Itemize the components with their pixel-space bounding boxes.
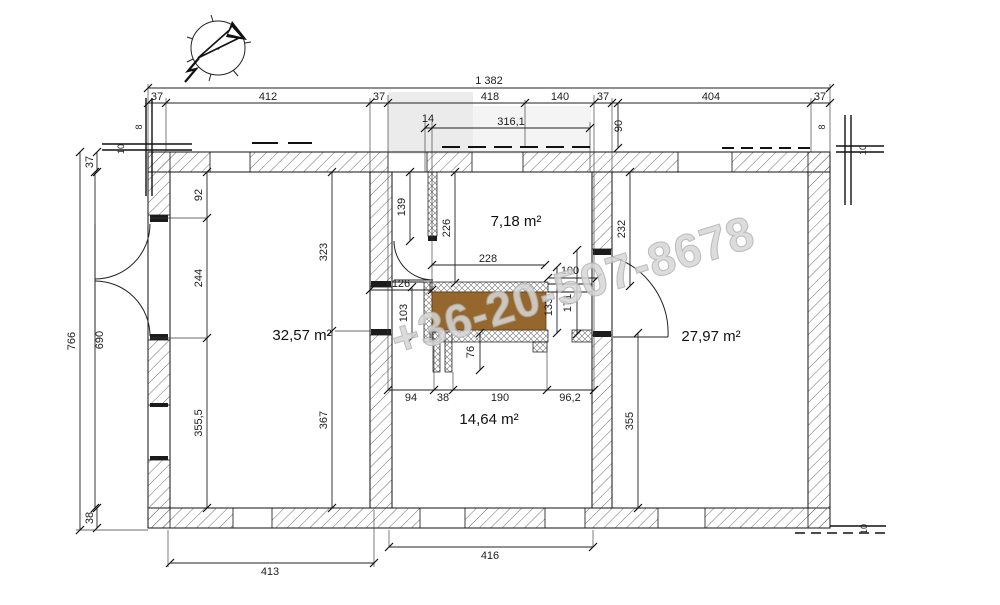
room-label-bottom: 14,64 m² (459, 411, 518, 428)
dim-404: 404 (702, 91, 720, 103)
dim-126: 126 (392, 278, 410, 290)
dim-190: 190 (491, 392, 509, 404)
dim-367: 367 (318, 411, 330, 429)
mark-10-bottom-right: 10 (859, 524, 869, 534)
mark-8-top-right: 8 (817, 124, 827, 129)
dim-37-a: 37 (151, 91, 163, 103)
dim-232: 232 (616, 220, 628, 238)
dim-38-left: 38 (84, 512, 96, 524)
dim-418: 418 (481, 91, 499, 103)
dim-355-5: 355,5 (193, 409, 205, 437)
room-label-left: 32,57 m² (272, 327, 331, 344)
north-arrow (185, 15, 251, 82)
dim-766: 766 (66, 332, 78, 350)
dim-37-left: 37 (84, 156, 96, 168)
room-label-right: 27,97 m² (681, 328, 740, 345)
floor-plan-canvas: 1 382 37 412 37 418 140 37 404 37 14 316… (0, 0, 1000, 605)
dim-323: 323 (318, 243, 330, 261)
dim-412: 412 (259, 91, 277, 103)
dim-316-1: 316,1 (497, 116, 525, 128)
floor-plan-drawing: 1 382 37 412 37 418 140 37 404 37 14 316… (0, 0, 1000, 605)
dim-92: 92 (193, 189, 205, 201)
dim-690: 690 (94, 331, 106, 349)
dim-140: 140 (551, 91, 569, 103)
dim-139: 139 (396, 198, 408, 216)
mark-8-top-left: 8 (134, 124, 144, 129)
dim-94: 94 (405, 392, 417, 404)
dim-244: 244 (193, 269, 205, 287)
dim-228: 228 (479, 253, 497, 265)
dim-14: 14 (422, 113, 434, 125)
dim-355: 355 (624, 412, 636, 430)
dim-37-d: 37 (814, 91, 826, 103)
dim-overall-width: 1 382 (475, 75, 503, 87)
double-door-left-top-leaf (95, 224, 150, 279)
dim-38-b: 38 (437, 392, 449, 404)
room-label-top: 7,18 m² (491, 213, 542, 230)
hall-door-arc (394, 241, 433, 280)
dim-90: 90 (613, 120, 625, 132)
dim-416: 416 (481, 550, 499, 562)
dim-76: 76 (465, 346, 477, 358)
mark-10-top-left: 10 (116, 144, 126, 154)
dim-226: 226 (441, 219, 453, 237)
mark-10-top-right: 10 (858, 145, 868, 155)
dim-413: 413 (261, 566, 279, 578)
dim-37-b: 37 (373, 91, 385, 103)
dim-37-c: 37 (597, 91, 609, 103)
double-door-left-bottom-leaf (95, 281, 150, 336)
dim-96-2: 96,2 (559, 392, 580, 404)
